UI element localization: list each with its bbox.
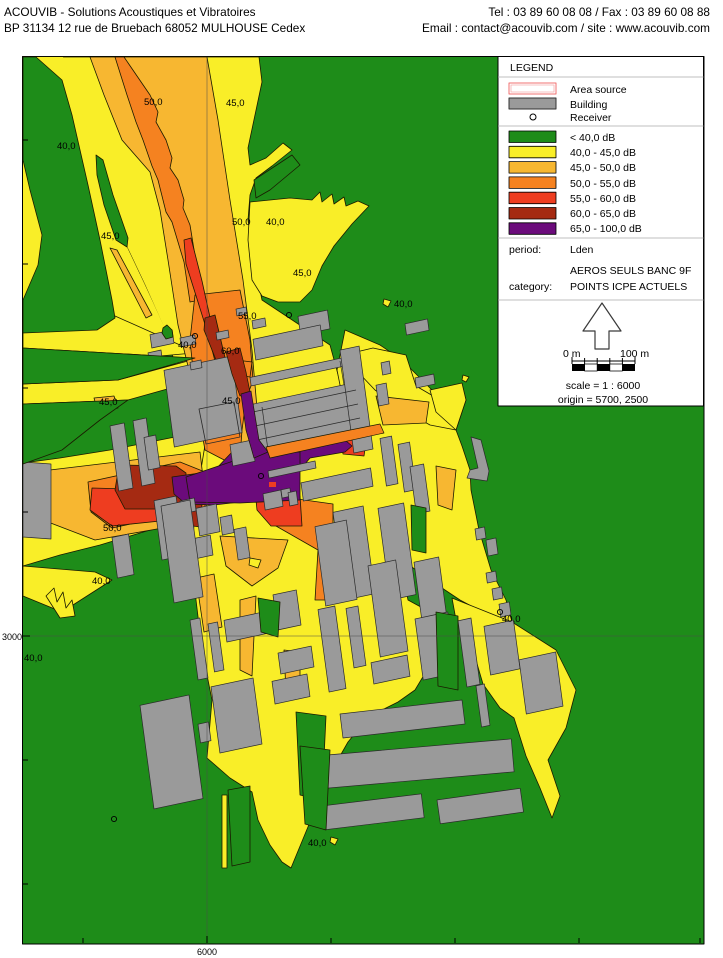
svg-text:AEROS SEULS BANC 9F: AEROS SEULS BANC 9F: [570, 265, 691, 277]
svg-text:40,0: 40,0: [394, 299, 413, 310]
svg-text:3000: 3000: [2, 632, 22, 642]
svg-text:60,0 - 65,0 dB: 60,0 - 65,0 dB: [570, 208, 636, 220]
svg-text:40,0: 40,0: [178, 340, 197, 351]
svg-text:Area source: Area source: [570, 84, 627, 96]
svg-text:55,0 - 60,0 dB: 55,0 - 60,0 dB: [570, 193, 636, 205]
svg-text:50,0 - 55,0 dB: 50,0 - 55,0 dB: [570, 178, 636, 190]
svg-text:45,0 - 50,0 dB: 45,0 - 50,0 dB: [570, 162, 636, 174]
svg-text:Building: Building: [570, 99, 608, 111]
svg-text:40,0: 40,0: [57, 141, 76, 152]
svg-text:6000: 6000: [197, 947, 217, 957]
svg-text:40,0: 40,0: [502, 614, 521, 625]
svg-text:< 40,0 dB: < 40,0 dB: [570, 132, 615, 144]
svg-text:45,0: 45,0: [293, 268, 312, 279]
svg-text:scale = 1 : 6000: scale = 1 : 6000: [566, 380, 641, 392]
svg-text:origin = 5700, 2500: origin = 5700, 2500: [558, 394, 648, 406]
svg-text:40,0 - 45,0 dB: 40,0 - 45,0 dB: [570, 147, 636, 159]
svg-text:50,0: 50,0: [232, 217, 251, 228]
svg-text:40,0: 40,0: [266, 217, 285, 228]
svg-text:55,0: 55,0: [238, 311, 257, 322]
svg-text:60,0: 60,0: [221, 346, 240, 357]
svg-text:category:: category:: [509, 281, 552, 293]
svg-text:Lden: Lden: [570, 244, 594, 256]
svg-text:50,0: 50,0: [103, 523, 122, 534]
svg-text:POINTS ICPE ACTUELS: POINTS ICPE ACTUELS: [570, 281, 687, 293]
svg-text:50,0: 50,0: [144, 97, 163, 108]
svg-text:40,0: 40,0: [308, 838, 327, 849]
svg-text:65,0 - 100,0 dB: 65,0 - 100,0 dB: [570, 223, 642, 235]
svg-text:40,0: 40,0: [92, 576, 111, 587]
svg-text:Receiver: Receiver: [570, 112, 612, 124]
svg-text:45,0: 45,0: [101, 231, 120, 242]
svg-text:45,0: 45,0: [226, 98, 245, 109]
svg-text:period:: period:: [509, 244, 541, 256]
svg-text:LEGEND: LEGEND: [510, 62, 554, 74]
svg-text:40,0: 40,0: [24, 653, 43, 664]
svg-text:45,0: 45,0: [222, 396, 241, 407]
svg-text:45,0: 45,0: [99, 397, 118, 408]
